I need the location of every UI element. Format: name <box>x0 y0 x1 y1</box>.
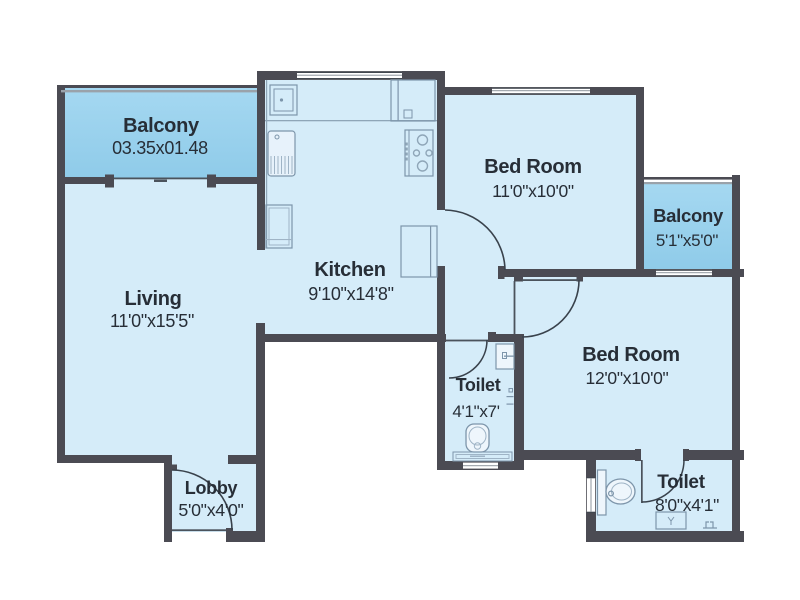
svg-text:Bed Room: Bed Room <box>484 156 582 178</box>
svg-text:Bed Room: Bed Room <box>582 344 680 366</box>
svg-text:Living: Living <box>124 288 181 310</box>
svg-text:12'0"x10'0": 12'0"x10'0" <box>586 368 669 388</box>
svg-text:Balcony: Balcony <box>653 205 724 226</box>
svg-text:Kitchen: Kitchen <box>314 259 385 281</box>
svg-text:Toilet: Toilet <box>456 375 501 395</box>
svg-text:03.35x01.48: 03.35x01.48 <box>112 138 208 158</box>
svg-text:9'10"x14'8": 9'10"x14'8" <box>308 284 393 304</box>
svg-text:Lobby: Lobby <box>185 478 238 498</box>
svg-text:11'0"x10'0": 11'0"x10'0" <box>492 181 574 201</box>
svg-text:Balcony: Balcony <box>123 115 200 137</box>
svg-text:4'1"x7': 4'1"x7' <box>452 402 499 421</box>
svg-text:5'0"x4'0": 5'0"x4'0" <box>178 500 243 520</box>
svg-text:5'1"x5'0": 5'1"x5'0" <box>656 231 718 250</box>
svg-text:Toilet: Toilet <box>657 472 705 493</box>
svg-text:8'0"x4'1": 8'0"x4'1" <box>655 495 719 515</box>
svg-text:11'0"x15'5": 11'0"x15'5" <box>110 311 194 331</box>
